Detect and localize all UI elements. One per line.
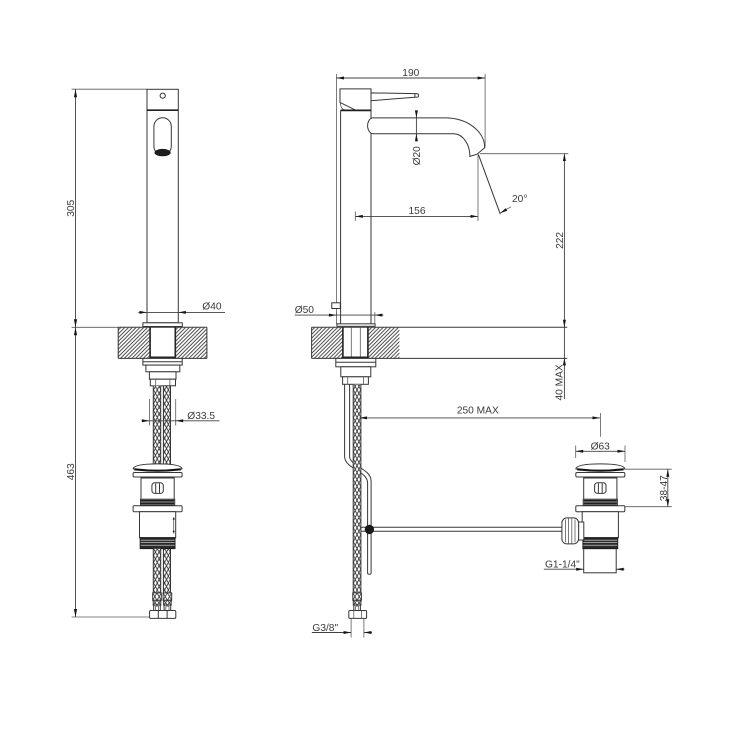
svg-text:38-47: 38-47 [659, 475, 670, 501]
svg-text:20°: 20° [512, 194, 527, 205]
svg-text:250 MAX: 250 MAX [457, 405, 499, 416]
svg-text:G3/8": G3/8" [312, 623, 338, 634]
svg-text:190: 190 [402, 68, 419, 79]
svg-text:40 MAX: 40 MAX [555, 364, 566, 400]
svg-text:463: 463 [66, 463, 77, 480]
svg-text:Ø33.5: Ø33.5 [187, 411, 215, 422]
svg-text:156: 156 [409, 206, 426, 217]
svg-text:G1-1/4": G1-1/4" [545, 559, 580, 570]
svg-text:Ø50: Ø50 [295, 305, 315, 316]
svg-text:Ø40: Ø40 [202, 302, 222, 313]
svg-text:222: 222 [555, 232, 566, 249]
svg-text:Ø20: Ø20 [412, 146, 423, 166]
svg-text:305: 305 [66, 199, 77, 216]
svg-text:Ø63: Ø63 [591, 442, 611, 453]
